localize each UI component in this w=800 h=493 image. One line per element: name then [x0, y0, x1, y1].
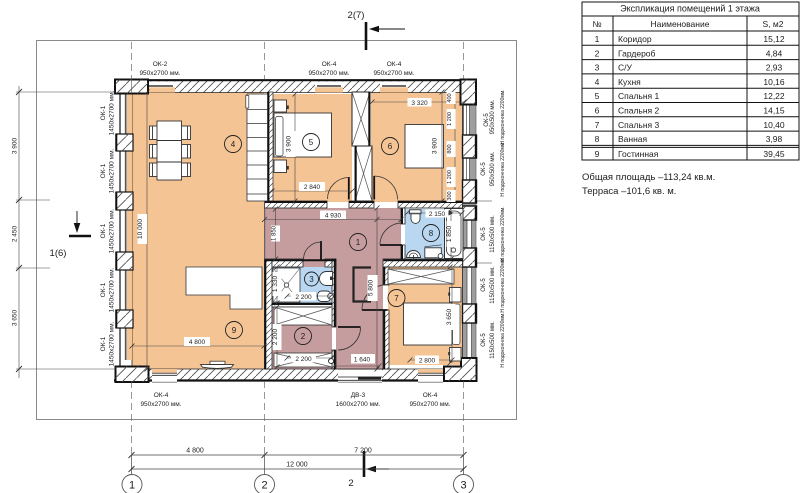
- svg-text:2: 2: [348, 478, 353, 489]
- svg-text:12 000: 12 000: [286, 462, 308, 469]
- svg-text:1: 1: [356, 238, 361, 247]
- svg-text:8: 8: [429, 229, 434, 238]
- svg-text:4 800: 4 800: [186, 448, 204, 455]
- svg-text:3 900: 3 900: [432, 137, 439, 154]
- svg-text:4,84: 4,84: [766, 48, 783, 58]
- svg-text:ОК-1: ОК-1: [100, 105, 107, 120]
- svg-text:39,45: 39,45: [763, 149, 785, 159]
- svg-text:1(6): 1(6): [50, 248, 67, 259]
- svg-text:3: 3: [460, 480, 466, 492]
- svg-text:6: 6: [595, 106, 600, 116]
- svg-text:10 000: 10 000: [137, 219, 144, 239]
- svg-text:10,40: 10,40: [763, 120, 785, 130]
- svg-text:Коридор: Коридор: [618, 34, 652, 44]
- svg-text:12,22: 12,22: [763, 91, 785, 101]
- svg-text:5: 5: [309, 138, 314, 147]
- svg-text:3 650: 3 650: [12, 309, 19, 326]
- svg-text:ДВ-3: ДВ-3: [351, 392, 366, 399]
- svg-text:5 800: 5 800: [368, 279, 375, 296]
- svg-text:3 900: 3 900: [12, 137, 19, 154]
- svg-text:400: 400: [447, 93, 453, 102]
- svg-text:ОК-4: ОК-4: [322, 61, 337, 68]
- svg-text:6: 6: [388, 142, 393, 151]
- svg-text:1: 1: [595, 34, 600, 44]
- svg-text:Наименование: Наименование: [651, 19, 710, 29]
- svg-text:ОК-4: ОК-4: [154, 392, 169, 399]
- svg-text:Н подоконника 2200мм.: Н подоконника 2200мм.: [500, 89, 506, 144]
- svg-text:9: 9: [595, 149, 600, 159]
- svg-text:2 200: 2 200: [295, 356, 312, 363]
- svg-text:1 640: 1 640: [354, 357, 371, 364]
- svg-text:950х500 мм.: 950х500 мм.: [490, 151, 496, 186]
- svg-text:1 200: 1 200: [447, 112, 453, 126]
- svg-text:2 150: 2 150: [429, 211, 446, 218]
- svg-text:ОК-4: ОК-4: [423, 392, 438, 399]
- svg-text:Спальня 3: Спальня 3: [618, 120, 660, 130]
- svg-text:3 650: 3 650: [446, 308, 453, 325]
- svg-text:950х500 мм.: 950х500 мм.: [490, 99, 496, 134]
- svg-text:1 850: 1 850: [446, 225, 453, 242]
- svg-text:Гардероб: Гардероб: [618, 48, 656, 58]
- svg-text:1600х2700 мм.: 1600х2700 мм.: [336, 401, 381, 408]
- svg-text:ОК-5: ОК-5: [481, 227, 487, 241]
- svg-text:Ванная: Ванная: [618, 134, 648, 144]
- svg-text:3 320: 3 320: [411, 100, 428, 107]
- svg-text:4 930: 4 930: [325, 212, 342, 219]
- svg-text:1450х2700 мм.: 1450х2700 мм.: [109, 208, 116, 253]
- svg-text:2,93: 2,93: [766, 63, 783, 73]
- svg-text:3 900: 3 900: [286, 135, 293, 152]
- svg-text:1150х500 мм.: 1150х500 мм.: [490, 321, 496, 359]
- svg-text:3: 3: [595, 63, 600, 73]
- svg-text:2: 2: [301, 332, 306, 341]
- svg-text:Общая площадь –113,24 кв.м.: Общая площадь –113,24 кв.м.: [582, 172, 715, 183]
- svg-text:С/У: С/У: [618, 63, 633, 73]
- svg-text:ОК-1: ОК-1: [100, 336, 107, 351]
- svg-text:ОК-1: ОК-1: [100, 282, 107, 297]
- svg-text:S, м2: S, м2: [763, 19, 784, 29]
- svg-text:800: 800: [447, 144, 453, 153]
- svg-text:Н подоконника 2200мм.: Н подоконника 2200мм.: [500, 312, 506, 367]
- svg-text:14,15: 14,15: [763, 106, 785, 116]
- svg-text:Кухня: Кухня: [618, 77, 641, 87]
- svg-text:Н подоконника 2200мм.: Н подоконника 2200мм.: [500, 257, 506, 312]
- svg-text:950х2700 мм.: 950х2700 мм.: [139, 70, 180, 77]
- svg-text:ОК-5: ОК-5: [481, 333, 487, 347]
- svg-text:950х2700 мм.: 950х2700 мм.: [140, 401, 181, 408]
- svg-text:4 800: 4 800: [189, 339, 206, 346]
- svg-text:Н подоконника 2200мм.: Н подоконника 2200мм.: [500, 206, 506, 261]
- svg-text:2 200: 2 200: [295, 294, 312, 301]
- svg-text:ОК-1: ОК-1: [100, 163, 107, 178]
- svg-text:4: 4: [595, 77, 600, 87]
- svg-text:2: 2: [261, 480, 267, 492]
- svg-text:300: 300: [447, 191, 453, 200]
- svg-text:2 200: 2 200: [272, 328, 279, 345]
- svg-text:1150х500 мм.: 1150х500 мм.: [490, 266, 496, 304]
- svg-text:1: 1: [129, 480, 135, 492]
- svg-text:1450х2700 мм.: 1450х2700 мм.: [109, 148, 116, 193]
- svg-text:1 200: 1 200: [447, 170, 453, 184]
- svg-text:1450х2700 мм.: 1450х2700 мм.: [109, 267, 116, 312]
- svg-text:1 330: 1 330: [272, 275, 279, 292]
- svg-text:4: 4: [231, 140, 236, 149]
- svg-text:Терраса –101,6 кв. м.: Терраса –101,6 кв. м.: [582, 186, 676, 197]
- svg-text:950х2700 мм.: 950х2700 мм.: [409, 401, 450, 408]
- svg-text:1 850: 1 850: [272, 225, 278, 241]
- svg-text:15,12: 15,12: [763, 34, 785, 44]
- svg-text:7 200: 7 200: [354, 448, 372, 455]
- svg-text:ОК-5: ОК-5: [481, 162, 487, 176]
- svg-text:Экспликация помещений 1 этажа: Экспликация помещений 1 этажа: [620, 4, 760, 14]
- svg-text:2 840: 2 840: [304, 184, 321, 191]
- svg-text:ОК-4: ОК-4: [387, 61, 402, 68]
- svg-text:7: 7: [595, 120, 600, 130]
- svg-text:ОК-5: ОК-5: [481, 278, 487, 292]
- svg-text:Гостинная: Гостинная: [618, 149, 659, 159]
- svg-text:950х2700 мм.: 950х2700 мм.: [373, 70, 414, 77]
- svg-text:1450х2700 мм.: 1450х2700 мм.: [109, 90, 116, 135]
- svg-text:Спальня 2: Спальня 2: [618, 106, 660, 116]
- svg-text:Спальня 1: Спальня 1: [618, 91, 660, 101]
- svg-text:ОК-2: ОК-2: [153, 61, 168, 68]
- svg-text:Н подоконника 2200мм.: Н подоконника 2200мм.: [500, 141, 506, 196]
- svg-text:№: №: [592, 19, 601, 29]
- svg-text:1450х2700 мм.: 1450х2700 мм.: [109, 321, 116, 366]
- svg-text:950х2700 мм.: 950х2700 мм.: [308, 70, 349, 77]
- svg-text:1150х500 мм.: 1150х500 мм.: [490, 215, 496, 253]
- svg-text:9: 9: [232, 326, 237, 335]
- svg-text:2(7): 2(7): [348, 10, 365, 21]
- svg-text:2: 2: [595, 48, 600, 58]
- svg-text:ОК-1: ОК-1: [100, 223, 107, 238]
- svg-text:3: 3: [309, 275, 314, 284]
- svg-text:3,98: 3,98: [766, 134, 783, 144]
- svg-text:10,16: 10,16: [763, 77, 785, 87]
- svg-text:8: 8: [595, 134, 600, 144]
- svg-text:2 450: 2 450: [12, 225, 19, 242]
- svg-text:7: 7: [394, 294, 399, 303]
- svg-text:5: 5: [595, 91, 600, 101]
- svg-text:2 800: 2 800: [419, 357, 436, 364]
